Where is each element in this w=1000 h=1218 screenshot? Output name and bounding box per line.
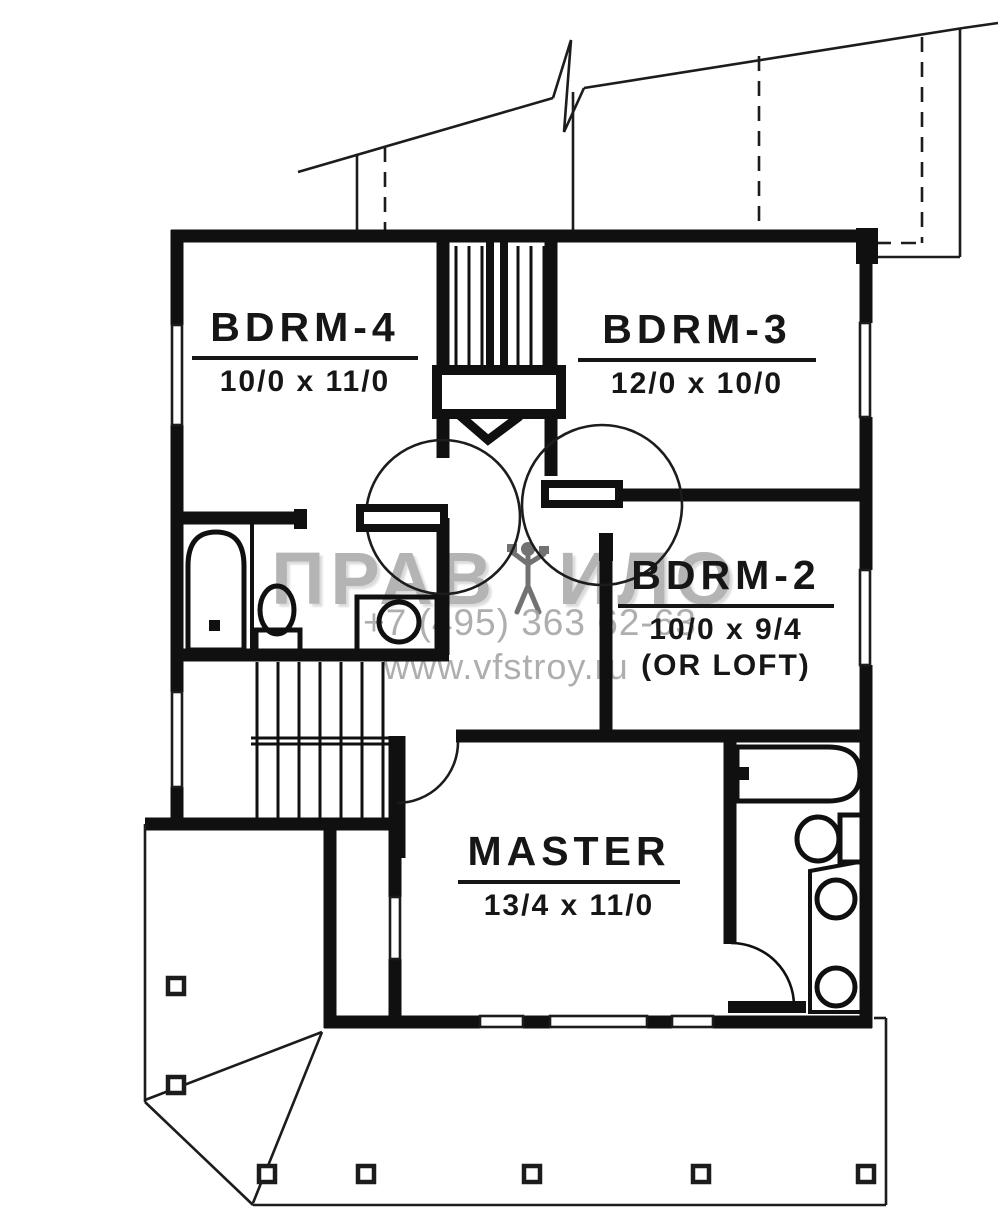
room-label-bdrm3: BDRM-3 12/0 x 10/0	[578, 306, 816, 401]
floor-plan-page: ПРАВ ИЛО +7 (495) 363 62-63 www.vfstroy.…	[0, 0, 1000, 1218]
room-note: (OR LOFT)	[618, 649, 834, 683]
room-dimensions: 13/4 x 11/0	[458, 889, 680, 923]
room-label-master: MASTER 13/4 x 11/0	[458, 828, 680, 923]
room-name: MASTER	[458, 828, 680, 884]
room-name: BDRM-2	[618, 552, 834, 608]
room-name: BDRM-4	[192, 304, 418, 360]
room-dimensions: 10/0 x 9/4	[618, 613, 834, 647]
room-dimensions: 10/0 x 11/0	[192, 365, 418, 399]
room-labels-layer: BDRM-4 10/0 x 11/0 BDRM-3 12/0 x 10/0 BD…	[0, 0, 1000, 1218]
room-name: BDRM-3	[578, 306, 816, 362]
room-dimensions: 12/0 x 10/0	[578, 367, 816, 401]
room-label-bdrm4: BDRM-4 10/0 x 11/0	[192, 304, 418, 399]
room-label-bdrm2: BDRM-2 10/0 x 9/4 (OR LOFT)	[618, 552, 834, 683]
